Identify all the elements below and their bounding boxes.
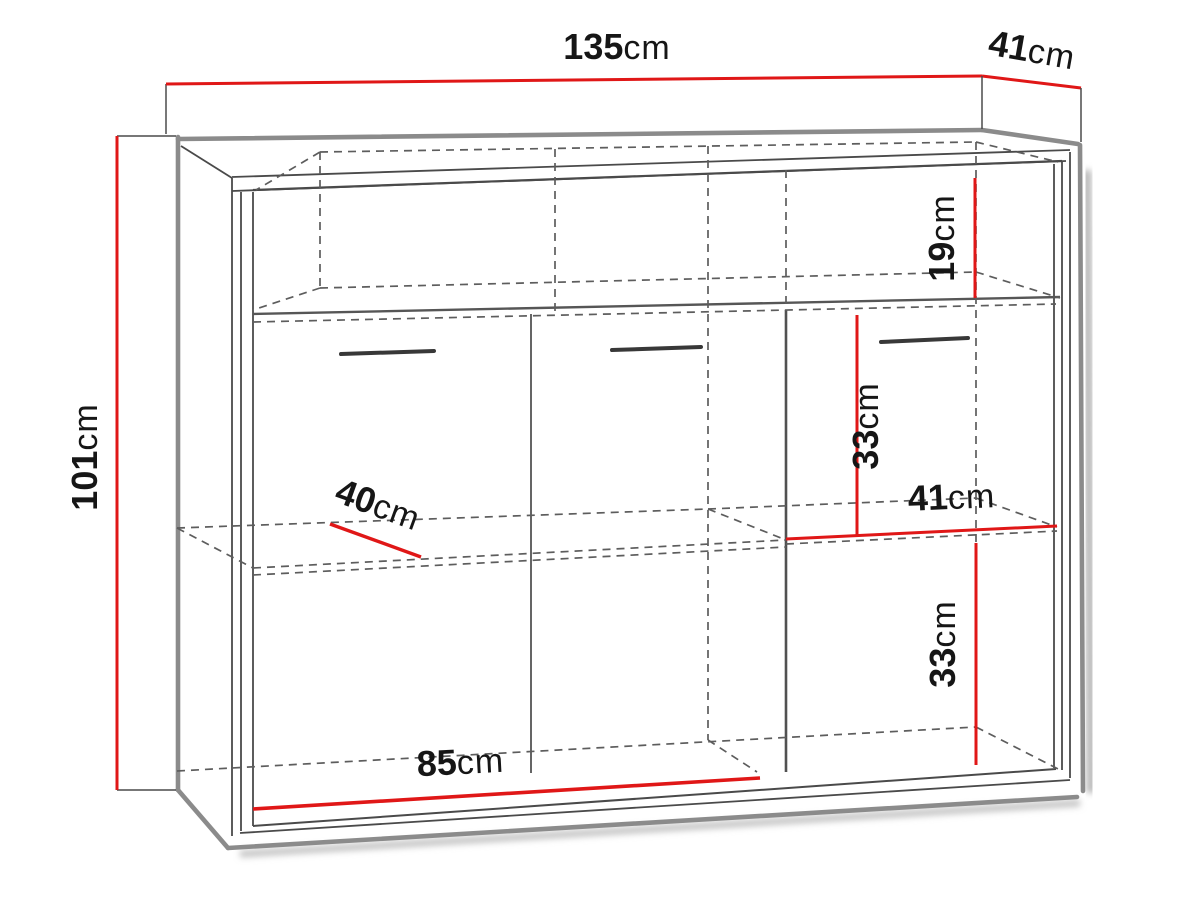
dim-label-right-width: 41cm bbox=[907, 474, 996, 519]
dim-label-total-width: 135cm bbox=[563, 26, 670, 67]
dimension-line-total-width bbox=[166, 76, 982, 84]
dim-label-total-height: 101cm bbox=[64, 403, 105, 510]
top-shelf-back-edge bbox=[320, 272, 976, 288]
dimension-total-depth: 41cm bbox=[982, 22, 1081, 142]
carcass-top-inner-edge bbox=[253, 161, 1062, 190]
dim-label-right-upper: 33cm bbox=[845, 382, 886, 469]
top-panel-miter-edge bbox=[181, 146, 232, 178]
dimension-shelf-depth: 40cm bbox=[330, 470, 426, 557]
cabinet-dimension-diagram: 135cm 41cm 101cm 19cm 33cm bbox=[0, 0, 1200, 899]
dimension-total-height: 101cm bbox=[64, 136, 176, 790]
dim-label-door-section: 85cm bbox=[416, 739, 505, 785]
middle-shelf-underside-edge bbox=[253, 547, 786, 575]
dimension-top-compartment: 19cm bbox=[921, 178, 975, 298]
bottom-right-diagonal bbox=[976, 727, 1060, 770]
dimension-right-section-width: 41cm bbox=[786, 474, 1057, 539]
top-shelf-right-diagonal bbox=[976, 272, 1060, 298]
top-right-corner-edge bbox=[982, 130, 1078, 144]
top-shelf-left-diagonal bbox=[253, 288, 320, 310]
top-back-edge bbox=[178, 130, 982, 139]
dimension-right-lower-section: 33cm bbox=[922, 543, 976, 765]
right-shadow bbox=[1087, 170, 1091, 793]
middle-shelf-back-edge bbox=[177, 509, 708, 528]
dim-label-right-lower: 33cm bbox=[922, 600, 963, 687]
dimension-drawing-page: 135cm 41cm 101cm 19cm 33cm bbox=[0, 0, 1200, 899]
carcass-bottom-inner-edge bbox=[253, 769, 1056, 826]
left-door-handle bbox=[341, 351, 434, 354]
top-shelf-front-edge bbox=[253, 297, 1060, 314]
dimension-door-section-width: 85cm bbox=[253, 739, 760, 809]
dim-label-total-depth: 41cm bbox=[986, 22, 1079, 78]
bottom-back-edge bbox=[177, 727, 976, 771]
middle-door-handle bbox=[612, 347, 701, 350]
door-handles bbox=[341, 338, 968, 354]
right-side-edge bbox=[1080, 145, 1083, 791]
right-door-handle bbox=[881, 338, 968, 342]
top-panel-front-edge bbox=[232, 150, 1070, 177]
bottom-left-corner-edge bbox=[178, 790, 228, 848]
middle-shelf-right-diagonal bbox=[708, 509, 786, 540]
dimension-line-total-depth bbox=[982, 76, 1081, 88]
bottom-shadow bbox=[240, 803, 1080, 854]
middle-shelf-front-edge bbox=[253, 540, 786, 568]
bottom-front-edge bbox=[228, 797, 1077, 848]
dimension-total-width: 135cm bbox=[166, 26, 982, 134]
interior-top-back-edge bbox=[320, 142, 976, 152]
dim-label-top-compartment: 19cm bbox=[921, 194, 962, 281]
interior-top-left-diagonal bbox=[256, 152, 320, 190]
bottom-divider-diagonal bbox=[708, 740, 757, 772]
